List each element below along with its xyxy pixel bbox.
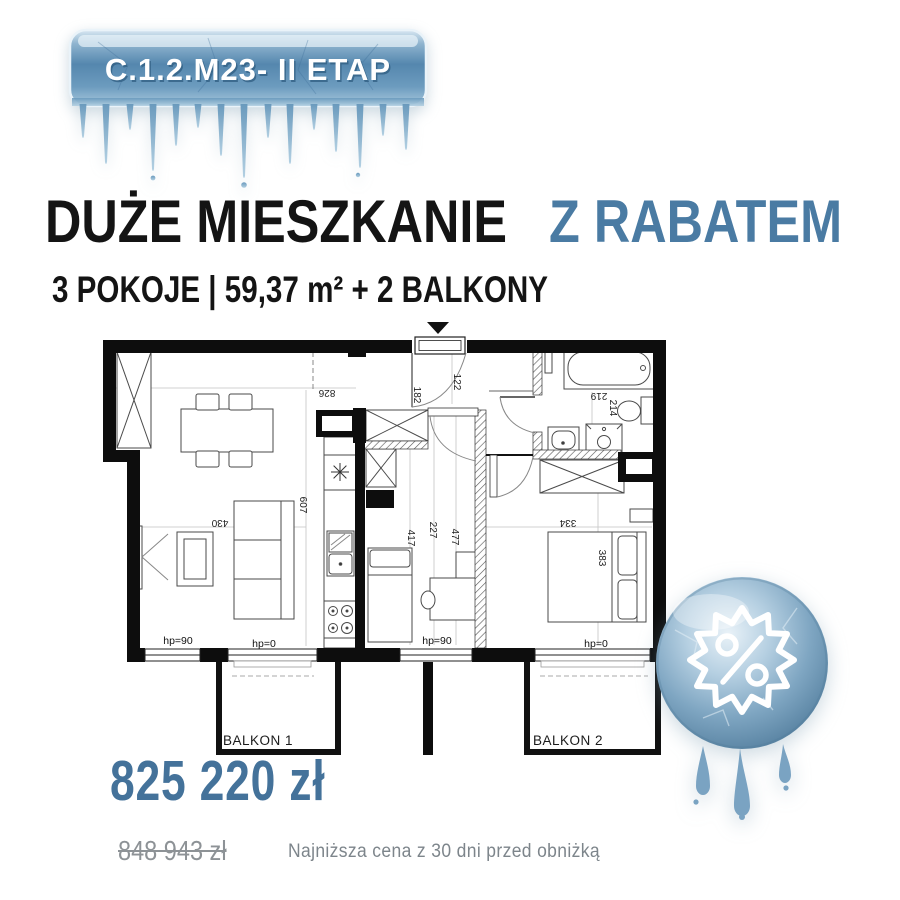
dim-hall: 826	[318, 387, 335, 398]
boiler-icon	[331, 463, 349, 481]
price-current: 825 220 zł	[110, 748, 325, 814]
dim-room2-b: 227	[427, 522, 438, 539]
dim-bedroom-w: 334	[559, 517, 576, 528]
balcony-labels: BALKON 1 BALKON 2	[223, 733, 603, 748]
balcony-door-window	[535, 649, 650, 667]
desk	[430, 578, 478, 620]
room-door	[428, 408, 478, 416]
price-note: Najniższa cena z 30 dni przed obniżką	[288, 841, 600, 863]
chair	[229, 394, 252, 410]
dresser	[630, 509, 653, 522]
dim-entry-a: 182	[411, 387, 422, 404]
bedroom-door	[490, 455, 497, 497]
chair	[196, 394, 219, 410]
pillow	[618, 536, 637, 575]
radiator	[545, 351, 552, 373]
pillow	[618, 580, 637, 619]
window	[400, 649, 472, 661]
window	[145, 649, 200, 661]
shaft-opening	[322, 416, 352, 431]
window-label: hp=90	[422, 635, 452, 647]
dim-bath-b: 214	[607, 400, 618, 417]
page-title: DUŻE MIESZKANIE Z RABATEM	[45, 192, 842, 252]
subtitle: 3 POKOJE | 59,37 m² + 2 BALKONY	[52, 269, 548, 311]
toilet-tank	[641, 397, 654, 424]
title-accent: Z RABATEM	[549, 188, 842, 255]
chair	[196, 451, 219, 467]
entry-marker-icon	[427, 322, 449, 334]
dim-living-h: 607	[297, 497, 308, 514]
kitchen	[324, 437, 356, 648]
balcony-divider	[423, 662, 433, 755]
poster: C.1.2.M23- II ETAP C.1.2.M23- II ETAP DU…	[0, 0, 900, 900]
dim-bedroom-h: 383	[596, 550, 607, 567]
dim-living-w: 430	[211, 517, 228, 528]
discount-ball	[645, 560, 845, 822]
floor-plan: 826 607 430 182 122 219 214 417 227 477 …	[95, 316, 680, 768]
entry-door	[415, 337, 465, 354]
dim-bath-a: 219	[590, 390, 607, 401]
dim-entry-b: 122	[451, 374, 462, 391]
price-old: 848 943 zł	[118, 835, 227, 867]
sofa	[234, 501, 294, 619]
toilet	[618, 401, 641, 421]
balcony-door-window	[228, 649, 317, 667]
window-label: hp=0	[252, 638, 276, 650]
icicles	[80, 104, 410, 188]
ice-block: C.1.2.M23- II ETAP C.1.2.M23- II ETAP	[70, 30, 426, 188]
balcony-2-label: BALKON 2	[533, 733, 603, 748]
window-label: hp=90	[163, 635, 193, 647]
dim-room2-c: 477	[449, 529, 460, 546]
window-label: hp=0	[584, 638, 608, 650]
chair	[229, 451, 252, 467]
desk-chair	[421, 591, 435, 609]
badge-label: C.1.2.M23- II ETAP	[105, 52, 391, 87]
balcony-1-label: BALKON 1	[223, 733, 293, 748]
stove	[324, 601, 356, 638]
shaft-opening	[626, 459, 652, 474]
dining-table	[181, 409, 273, 452]
ice-badge: C.1.2.M23- II ETAP C.1.2.M23- II ETAP	[58, 20, 440, 192]
dim-room2-a: 417	[405, 530, 416, 547]
title-main: DUŻE MIESZKANIE	[45, 188, 507, 255]
